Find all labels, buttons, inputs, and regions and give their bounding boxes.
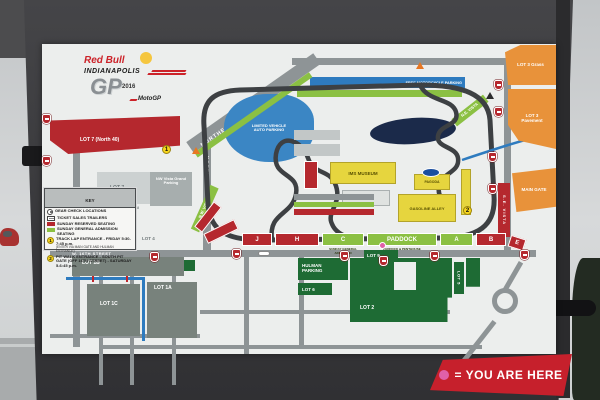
- track-lap-key-icon: 1: [47, 237, 54, 244]
- shuttle-pill: [258, 251, 270, 256]
- gate-icon-7: [430, 251, 439, 261]
- garage-building: GASOLINE ALLEY: [398, 194, 456, 222]
- cone-icon-1: [192, 147, 200, 154]
- pit-walk-key-icon: 2: [47, 255, 54, 262]
- lot3-grass-label: LOT 3 Grass: [517, 63, 544, 68]
- lot1c-label: LOT 1C: [100, 302, 118, 307]
- ticket-sales-icon: [47, 216, 55, 221]
- lot7-red-label: LOT 7 (North 40): [80, 138, 119, 143]
- key-row-track-lap: 1 TRACK LAP ENTRANCE - FRIDAY 5:30-7:45 …: [45, 237, 135, 254]
- lot5-box: LOT 5: [454, 262, 464, 294]
- stand-b: B: [476, 233, 506, 246]
- cone-icon-3: [486, 92, 494, 99]
- event-year: 2016: [122, 84, 135, 90]
- key-title: KEY: [85, 198, 94, 203]
- marker-2-number: 2: [466, 208, 469, 214]
- lot1a-label: LOT 1A: [154, 286, 172, 291]
- marker-1-number: 1: [165, 147, 168, 153]
- stand-paddock: PADDOCK: [367, 233, 437, 246]
- stand-c-label: C: [341, 237, 345, 243]
- you-are-here-banner-text: = YOU ARE HERE: [454, 368, 562, 382]
- stand-h-label: H: [295, 237, 299, 243]
- lot3-pavement-label: LOT 3 Pavement: [517, 114, 547, 123]
- ticket-sales-label: TICKET SALES TRAILERS: [57, 216, 107, 221]
- sun-icon: [140, 52, 152, 64]
- track-lap-sub: (ENTER VIA MAIN GATE AND HULMAN ENTRANCE…: [56, 246, 133, 253]
- lot5-label: LOT 5: [457, 271, 462, 285]
- motogp-logo: MotoGP: [138, 96, 161, 102]
- track-lap-key-number: 1: [49, 238, 52, 243]
- map-panel: NW Vista Grand Parking LOT 7 PREMIUM LOT…: [42, 44, 556, 354]
- redbull-wordmark: Red Bull: [84, 55, 125, 66]
- key-header: KEY: [45, 189, 135, 208]
- stand-e-label: E: [514, 240, 520, 247]
- stand-a: A: [440, 233, 473, 246]
- key-row-pit-walk: 2 PIT WALK ENTRANCE - SOUTH PIT GATE (OF…: [45, 254, 135, 269]
- terrace-band-red: [294, 209, 374, 215]
- main-gate-area: MAIN GATE: [512, 168, 556, 212]
- general-admission-swatch: [47, 228, 55, 232]
- reserved-seating-swatch: [47, 222, 55, 226]
- curb-line: [0, 344, 40, 347]
- gear-check-icon: [47, 209, 53, 215]
- stand-b-label: B: [489, 237, 493, 243]
- hulman-parking-box: HULMAN PARKING: [298, 258, 348, 280]
- car-window: [3, 231, 12, 237]
- lot6-label: LOT 6: [302, 287, 315, 292]
- terrace-band-gray: [294, 194, 374, 200]
- stand-j-label: J: [255, 237, 258, 243]
- infield-block-2: [294, 144, 340, 156]
- gate-icon-1: [42, 114, 51, 124]
- motogp-swoosh: [129, 99, 137, 101]
- stand-a-label: A: [454, 237, 458, 243]
- lot2-label: LOT 2: [360, 306, 374, 311]
- lot2-notch: [394, 262, 416, 290]
- speed-stripe-2: [148, 73, 187, 75]
- gp-mark: GP: [90, 74, 122, 100]
- museum-building: IMS MUSEUM: [330, 162, 396, 184]
- cone-icon-2: [416, 62, 424, 69]
- event-logo: Red Bull INDIANAPOLIS GP 2016 MotoGP: [82, 52, 194, 110]
- you-are-here-banner: = YOU ARE HERE: [430, 354, 572, 396]
- gate-icon-9: [494, 80, 503, 90]
- stand-h: H: [275, 233, 319, 246]
- lot3-grass-area: LOT 3 Grass: [505, 45, 556, 85]
- track-lap-entrance-marker: 1: [162, 145, 171, 154]
- infield-block-1: [294, 130, 340, 140]
- you-are-here-dot: [379, 242, 386, 249]
- lot9-label: LOT 9: [367, 253, 380, 258]
- gate-icon-2: [42, 156, 51, 166]
- photo-of-track-map-sign: NW Vista Grand Parking LOT 7 PREMIUM LOT…: [0, 0, 600, 400]
- trees-right: [572, 258, 600, 400]
- suites-block: [304, 161, 318, 189]
- stand-c: C: [322, 233, 364, 246]
- speed-stripe-1: [152, 70, 187, 72]
- gate-icon-11: [488, 152, 497, 162]
- stand-paddock-label: PADDOCK: [387, 237, 417, 243]
- gate-icon-10: [494, 107, 503, 117]
- pit-walk-label: PIT WALK ENTRANCE - SOUTH PIT GATE (OFF …: [56, 255, 133, 269]
- board-edge: [556, 0, 570, 398]
- map-key: KEY GEAR CHECK LOCATIONS TICKET SALES TR…: [44, 188, 136, 250]
- gate-icon-4: [232, 249, 241, 259]
- gate-icon-5: [340, 251, 349, 261]
- you-are-here-banner-dot: [439, 370, 449, 380]
- key-row-gear-check: GEAR CHECK LOCATIONS: [45, 208, 135, 215]
- gate-icon-6: [379, 256, 388, 266]
- pit-walk-key-number: 2: [49, 256, 52, 261]
- pagoda-logo-oval: [422, 168, 440, 177]
- hulman-parking-label: HULMAN PARKING: [302, 264, 330, 274]
- pit-walk-entrance-marker: 2: [463, 206, 472, 215]
- museum-label: IMS MUSEUM: [348, 171, 377, 176]
- garage-label: GASOLINE ALLEY: [409, 206, 445, 211]
- lot1c-area: [87, 284, 140, 336]
- gate-icon-12: [488, 184, 497, 194]
- stand-j: J: [242, 233, 272, 246]
- terrace-band-green: [294, 202, 374, 207]
- main-gate-label: MAIN GATE: [521, 188, 547, 193]
- gate-icon-3: [150, 252, 159, 262]
- gate-icon-8: [520, 250, 529, 260]
- gear-check-label: GEAR CHECK LOCATIONS: [55, 209, 106, 214]
- pagoda-label: PAGODA: [418, 180, 446, 184]
- lot6-box: LOT 6: [298, 283, 332, 295]
- general-admission-label: SUNDAY GENERAL ADMISSION SEATING: [57, 227, 133, 236]
- key-row-general-admission: SUNDAY GENERAL ADMISSION SEATING: [45, 227, 135, 237]
